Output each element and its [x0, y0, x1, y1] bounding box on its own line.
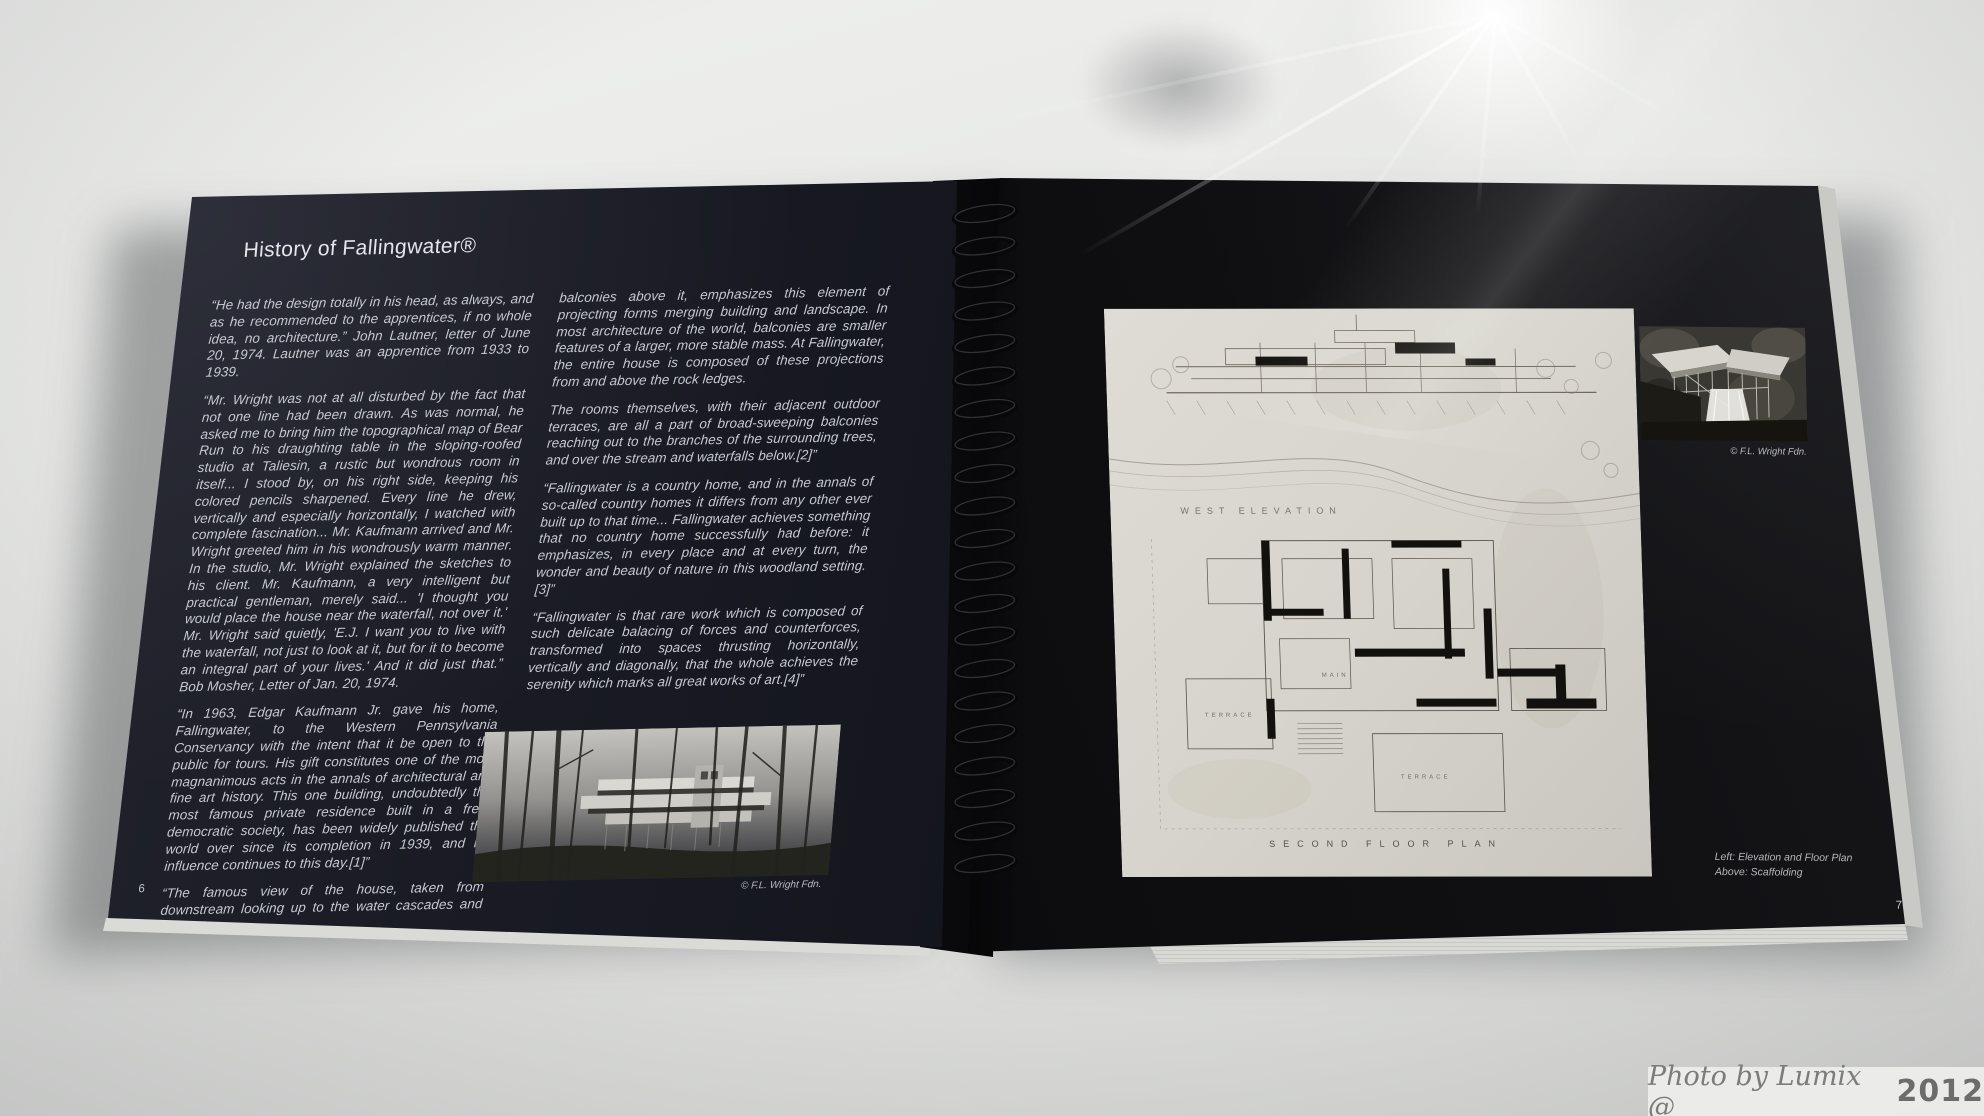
figure-caption: Left: Elevation and Floor Plan Above: Sc…	[1715, 850, 1853, 881]
elevation-label: WEST ELEVATION	[1180, 506, 1342, 516]
paragraph: “Mr. Wright was not at all disturbed by …	[179, 386, 526, 696]
right-page-content: WEST ELEVATION	[1000, 177, 1927, 966]
spiral-coil	[954, 201, 1016, 227]
paragraph: balconies above it, emphasizes this elem…	[552, 283, 890, 391]
watermark-year: 2012	[1897, 1074, 1984, 1109]
left-page: History of Fallingwater® “He had the des…	[100, 170, 970, 960]
left-page-content: History of Fallingwater® “He had the des…	[127, 164, 962, 952]
floorplan-label: SECOND FLOOR PLAN	[1269, 839, 1503, 849]
spiral-coil	[954, 266, 1016, 292]
scaffolding-photo-graphic	[1639, 326, 1807, 442]
spiral-coil	[954, 461, 1016, 487]
spiral-coil	[954, 721, 1016, 747]
paragraph: “Fallingwater is a country home, and in …	[534, 474, 874, 599]
light-ray	[1494, 13, 1687, 126]
room-label-terrace-2: TERRACE	[1401, 775, 1451, 781]
spiral-coil	[954, 234, 1016, 260]
paragraph: “Fallingwater is that rare work which is…	[526, 603, 863, 694]
spiral-coil	[954, 786, 1016, 812]
watermark: Photo by Lumix @ 2012	[1648, 1067, 1984, 1116]
spiral-coil	[954, 559, 1016, 585]
photo-of-open-book: History of Fallingwater® “He had the des…	[0, 0, 1984, 1116]
spiral-coil	[954, 396, 1016, 422]
floorplan-graphic: WEST ELEVATION	[1104, 308, 1652, 877]
specular-highlight	[1345, 0, 1645, 165]
construction-photo-graphic	[472, 725, 841, 883]
spiral-coil	[954, 494, 1016, 520]
spiral-coil	[954, 591, 1016, 617]
page-title: History of Fallingwater®	[209, 233, 511, 263]
spiral-coil	[954, 689, 1016, 715]
spiral-coil	[954, 754, 1016, 780]
watermark-text: Photo by Lumix @	[1648, 1061, 1887, 1116]
spiral-coil	[954, 331, 1016, 357]
room-label-main: MAIN	[1322, 673, 1349, 679]
light-ray	[947, 13, 1496, 133]
spiral-coil	[954, 364, 1016, 390]
paragraph: “He had the design totally in his head, …	[205, 291, 534, 382]
elevation-floorplan-drawing: WEST ELEVATION	[1104, 308, 1652, 877]
page-number-left: 6	[138, 883, 145, 895]
paragraph: “In 1963, Edgar Kaufmann Jr. gave his ho…	[164, 700, 500, 875]
right-page: WEST ELEVATION	[960, 170, 1925, 962]
spiral-coil	[954, 299, 1016, 325]
spiral-coil	[954, 656, 1016, 682]
spiral-coil	[954, 526, 1016, 552]
spiral-coil	[954, 429, 1016, 455]
spiral-coil	[954, 819, 1016, 845]
light-ray	[1493, 14, 1586, 172]
page-number-right: 7	[1896, 900, 1903, 912]
spiral-binding	[938, 190, 1038, 890]
paragraph: The rooms themselves, with their adjacen…	[545, 395, 881, 469]
spiral-coil	[954, 851, 1016, 877]
scaffolding-photo	[1639, 326, 1807, 442]
spiral-coil	[954, 624, 1016, 650]
soft-reflection-shadow	[1080, 20, 1280, 150]
photo-credit: © F.L. Wright Fdn.	[1642, 445, 1807, 458]
caption-line-2: Above: Scaffolding	[1715, 865, 1853, 881]
construction-photo	[472, 725, 841, 883]
room-label-terrace-1: TERRACE	[1205, 713, 1255, 719]
caption-line-1: Left: Elevation and Floor Plan	[1715, 850, 1853, 866]
